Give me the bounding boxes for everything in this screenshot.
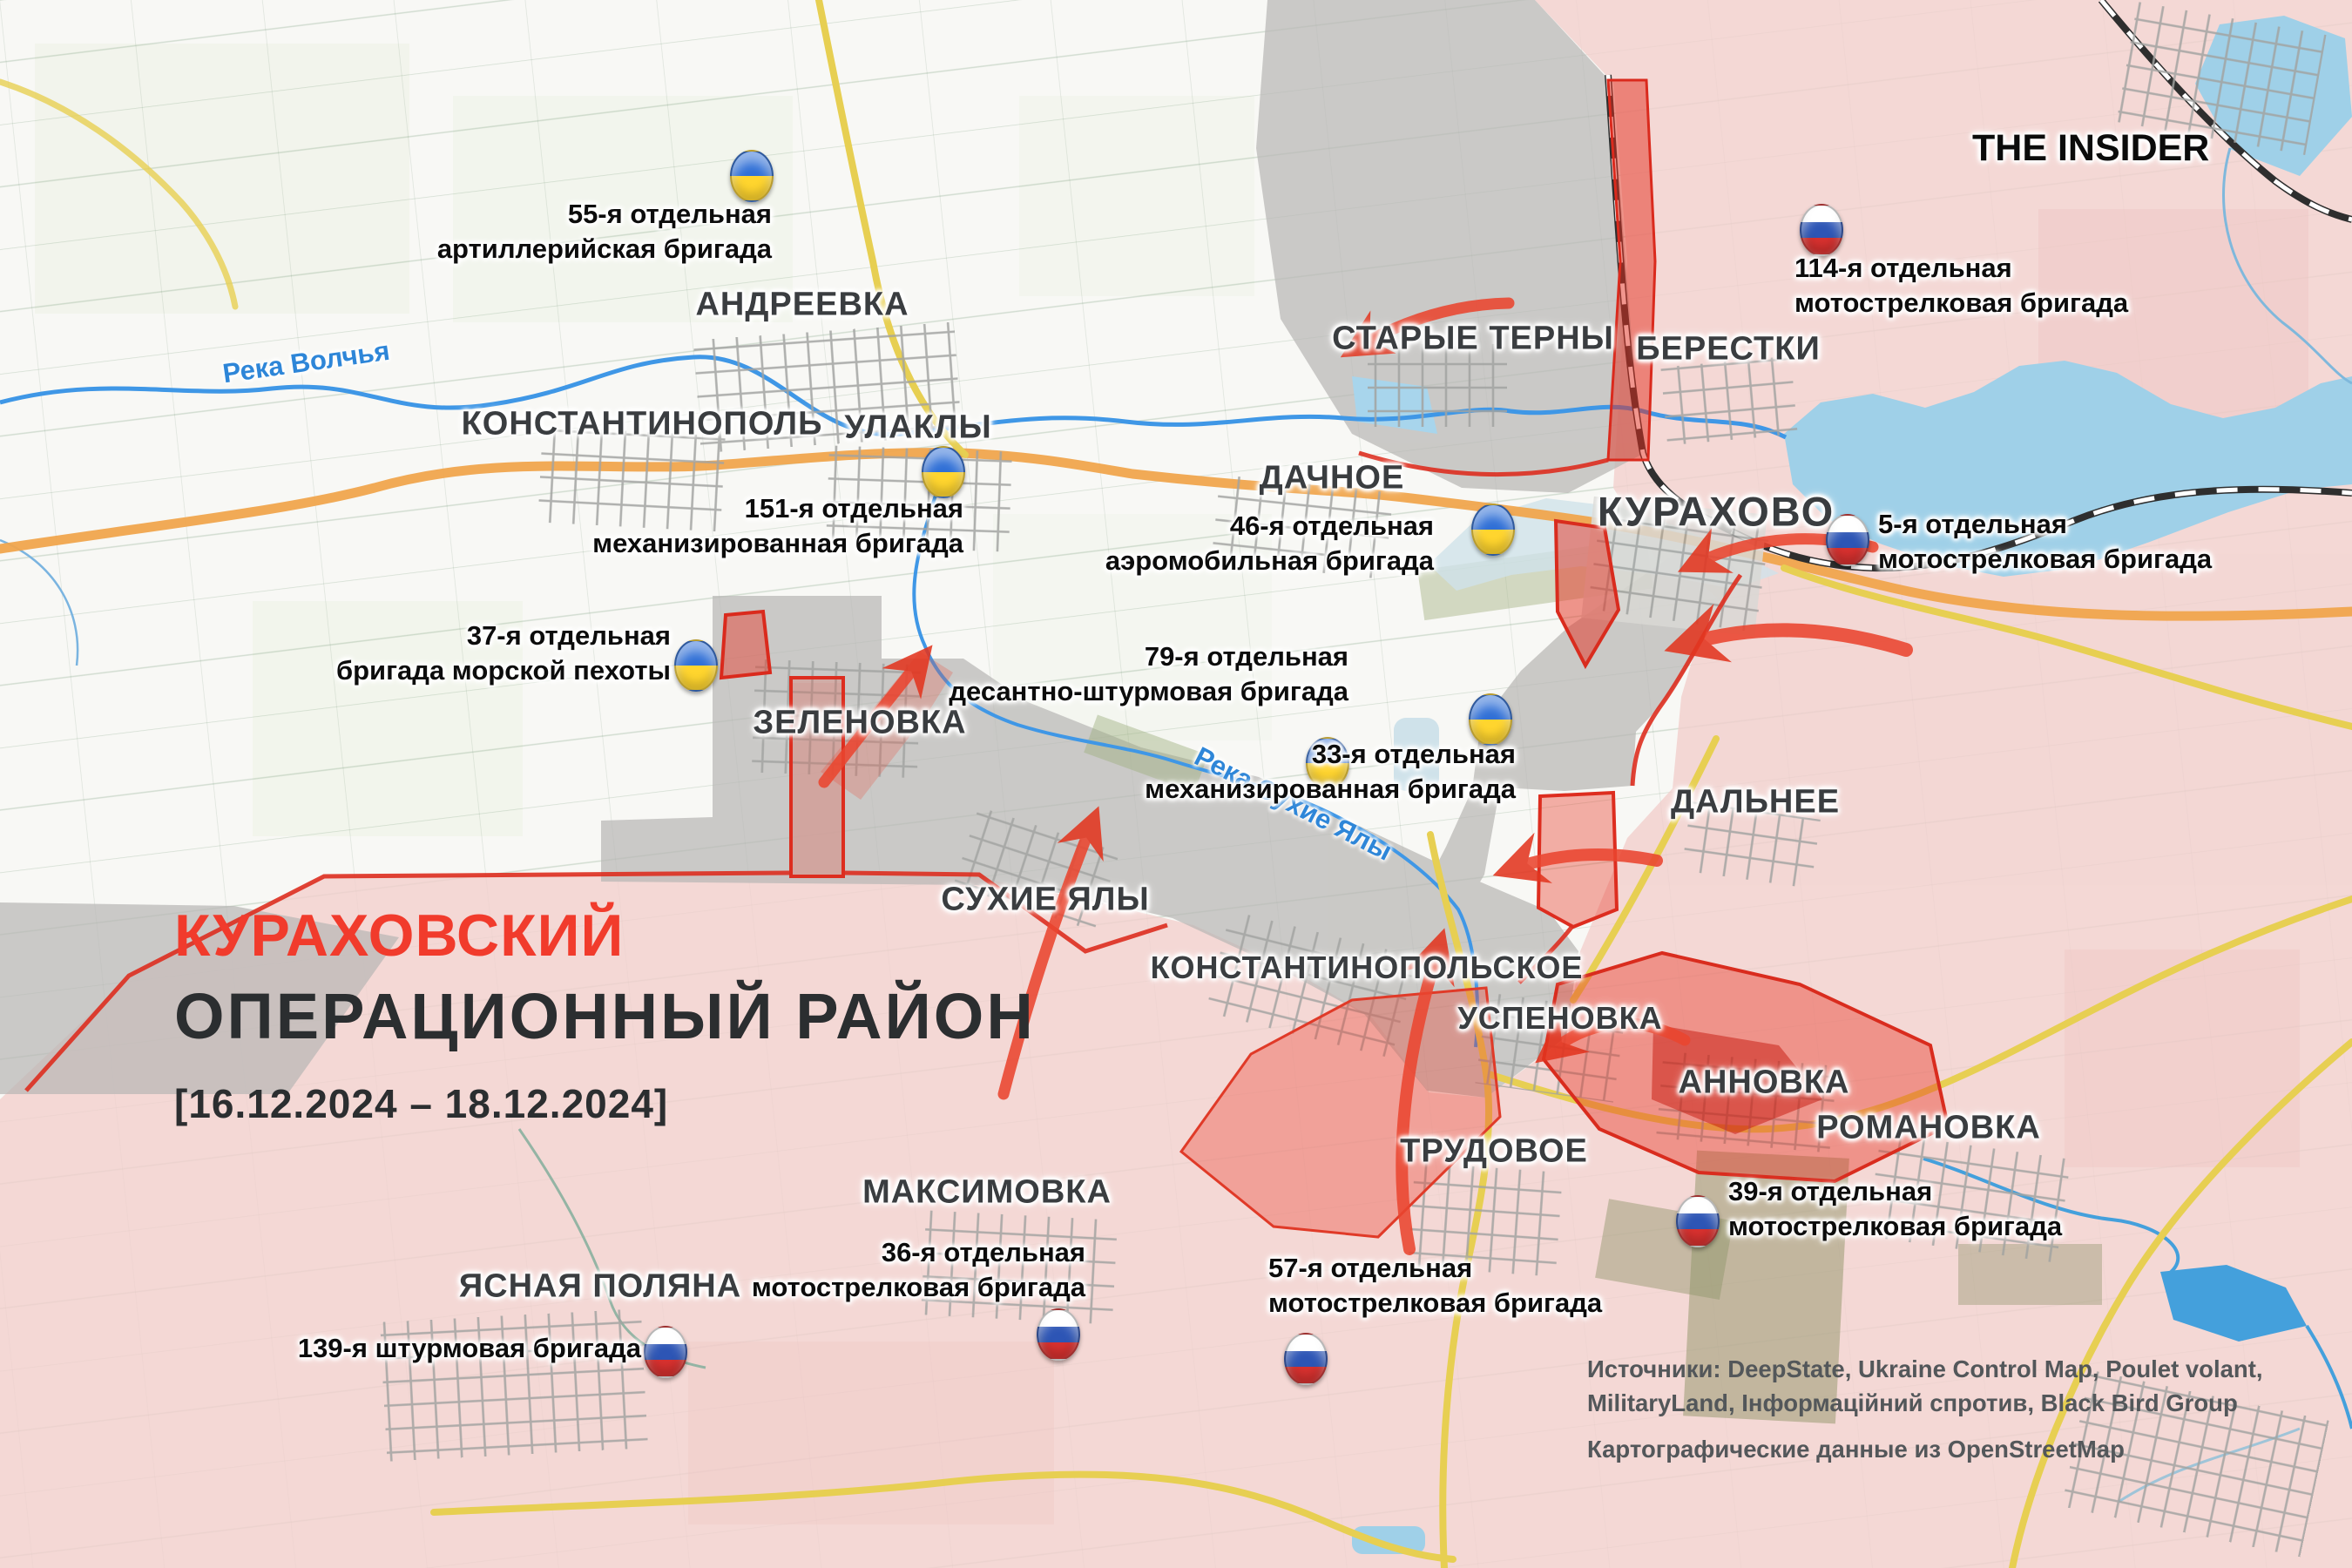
unit-line: мотострелковая бригада bbox=[1268, 1286, 1602, 1321]
settlement-starye-terny: СТАРЫЕ ТЕРНЫ bbox=[1332, 321, 1614, 358]
unit-line: 39-я отдельная bbox=[1728, 1174, 2062, 1209]
unit-label-33rd: 33-я отдельная механизированная бригада bbox=[1145, 737, 1516, 807]
unit-line: 151-я отдельная bbox=[592, 491, 963, 526]
russia-flag-icon bbox=[644, 1326, 687, 1378]
settlement-berestki: БЕРЕСТКИ bbox=[1636, 331, 1821, 368]
unit-line: мотострелковая бригада bbox=[752, 1270, 1085, 1305]
ukraine-flag-icon bbox=[674, 639, 718, 692]
unit-line: артиллерийская бригада bbox=[437, 232, 772, 267]
unit-line: 46-я отдельная bbox=[1105, 509, 1434, 544]
settlement-andreevka: АНДРЕЕВКА bbox=[695, 287, 909, 324]
unit-line: 114-я отдельная bbox=[1794, 251, 2128, 286]
unit-label-139th: 139-я штурмовая бригада bbox=[298, 1331, 641, 1366]
unit-line: 139-я штурмовая бригада bbox=[298, 1331, 641, 1366]
unit-line: 55-я отдельная bbox=[437, 197, 772, 232]
unit-line: 33-я отдельная bbox=[1145, 737, 1516, 772]
unit-line: 5-я отдельная bbox=[1878, 507, 2212, 542]
unit-line: механизированная бригада bbox=[1145, 772, 1516, 807]
unit-label-79th: 79-я отдельная десантно-штурмовая бригад… bbox=[949, 639, 1348, 709]
sources-credit: Источники: DeepState, Ukraine Control Ma… bbox=[1587, 1352, 2263, 1466]
settlement-zelenovka: ЗЕЛЕНОВКА bbox=[753, 705, 966, 742]
unit-line: бригада морской пехоты bbox=[336, 653, 671, 688]
unit-label-55th: 55-я отдельная артиллерийская бригада bbox=[437, 197, 772, 267]
unit-line: мотострелковая бригада bbox=[1878, 542, 2212, 577]
unit-label-39th: 39-я отдельная мотострелковая бригада bbox=[1728, 1174, 2062, 1244]
settlement-annovka: АННОВКА bbox=[1679, 1064, 1850, 1102]
settlement-dachnoe: ДАЧНОЕ bbox=[1260, 460, 1405, 497]
unit-label-151st: 151-я отдельная механизированная бригада bbox=[592, 491, 963, 561]
unit-label-36th: 36-я отдельная мотострелковая бригада bbox=[752, 1235, 1085, 1305]
settlement-konstantinopol: КОНСТАНТИНОПОЛЬ bbox=[462, 406, 823, 443]
title-line-red: КУРАХОВСКИЙ bbox=[174, 906, 1036, 965]
unit-label-114th: 114-я отдельная мотострелковая бригада bbox=[1794, 251, 2128, 321]
settlement-konstantinopolskoe: КОНСТАНТИНОПОЛЬСКОЕ bbox=[1151, 950, 1584, 986]
unit-line: 79-я отдельная bbox=[949, 639, 1348, 674]
settlement-kurakhovo: КУРАХОВО bbox=[1598, 488, 1835, 536]
war-map: АНДРЕЕВКА КОНСТАНТИНОПОЛЬ УЛАКЛЫ СТАРЫЕ … bbox=[0, 0, 2352, 1568]
russia-flag-icon bbox=[1800, 204, 1843, 256]
sources-line: Источники: DeepState, Ukraine Control Ma… bbox=[1587, 1352, 2263, 1386]
title-date-range: [16.12.2024 – 18.12.2024] bbox=[174, 1084, 1036, 1124]
map-title: КУРАХОВСКИЙ ОПЕРАЦИОННЫЙ РАЙОН [16.12.20… bbox=[174, 906, 1036, 1124]
settlement-ulakly: УЛАКЛЫ bbox=[844, 409, 991, 447]
settlement-maksimovka: МАКСИМОВКА bbox=[862, 1174, 1112, 1212]
the-insider-logo: THE INSIDER bbox=[1972, 127, 2209, 170]
unit-label-37th: 37-я отдельная бригада морской пехоты bbox=[336, 618, 671, 688]
unit-line: аэромобильная бригада bbox=[1105, 544, 1434, 578]
unit-label-46th: 46-я отдельная аэромобильная бригада bbox=[1105, 509, 1434, 578]
ukraine-flag-icon bbox=[730, 150, 774, 202]
unit-label-5th: 5-я отдельная мотострелковая бригада bbox=[1878, 507, 2212, 577]
unit-line: десантно-штурмовая бригада bbox=[949, 674, 1348, 709]
settlement-dalneye: ДАЛЬНЕЕ bbox=[1671, 784, 1840, 821]
ukraine-flag-icon bbox=[1471, 504, 1515, 556]
unit-line: 36-я отдельная bbox=[752, 1235, 1085, 1270]
russia-flag-icon bbox=[1826, 514, 1869, 566]
settlement-uspenovka: УСПЕНОВКА bbox=[1457, 1000, 1662, 1037]
settlement-trudovoe: ТРУДОВОЕ bbox=[1400, 1133, 1588, 1171]
ukraine-flag-icon bbox=[922, 446, 965, 498]
unit-line: 57-я отдельная bbox=[1268, 1251, 1602, 1286]
unit-line: мотострелковая бригада bbox=[1794, 286, 2128, 321]
settlement-romanovka: РОМАНОВКА bbox=[1816, 1110, 2041, 1147]
settlement-yasnaya-polyana: ЯСНАЯ ПОЛЯНА bbox=[459, 1268, 741, 1306]
russia-flag-icon bbox=[1037, 1308, 1080, 1361]
title-line-dark: ОПЕРАЦИОННЫЙ РАЙОН bbox=[174, 984, 1036, 1049]
unit-label-57th: 57-я отдельная мотострелковая бригада bbox=[1268, 1251, 1602, 1321]
unit-line: мотострелковая бригада bbox=[1728, 1209, 2062, 1244]
sources-line: Картографические данные из OpenStreetMap bbox=[1587, 1432, 2263, 1466]
advance-box-zelenovka bbox=[721, 612, 770, 678]
unit-line: 37-я отдельная bbox=[336, 618, 671, 653]
sources-line: MilitaryLand, Інформаційний спротив, Bla… bbox=[1587, 1386, 2263, 1420]
russia-flag-icon bbox=[1676, 1195, 1720, 1247]
unit-line: механизированная бригада bbox=[592, 526, 963, 561]
russia-flag-icon bbox=[1284, 1333, 1328, 1385]
